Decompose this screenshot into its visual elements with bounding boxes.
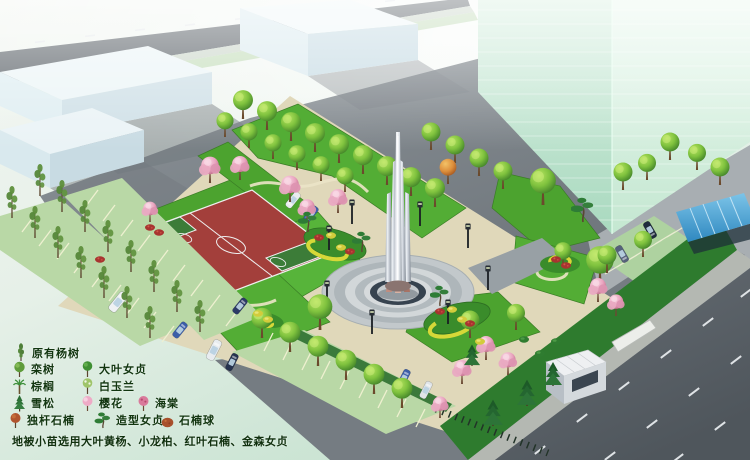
legend-item: 海棠 [136,394,179,412]
legend-item: 造型女贞 [94,411,164,429]
legend-item: 雪松 [12,394,55,412]
shaped-privet-icon [94,411,112,429]
legend-label: 造型女贞 [116,415,164,429]
legend-item: 原有杨树 [14,340,80,362]
single-stem-photinia-icon [8,411,23,429]
groundcover-note: 地被小苗选用大叶黄杨、小龙柏、红叶石楠、金森女贞 [12,433,288,449]
bigleaf-privet-tree-icon [80,360,95,378]
legend-label: 栾树 [31,364,55,378]
legend-label: 大叶女贞 [99,364,147,378]
legend-label: 白玉兰 [99,381,135,395]
legend-item: 石楠球 [160,411,215,429]
koelreuteria-tree-icon [12,360,27,378]
legend-item: 棕榈 [12,377,55,395]
legend-item: 大叶女贞 [80,360,147,378]
legend-item: 樱花 [80,394,123,412]
legend-item: 栾树 [12,360,55,378]
legend-label: 樱花 [99,398,123,412]
photinia-ball-icon [160,411,175,429]
white-magnolia-tree-icon [80,377,95,395]
palm-tree-icon [12,377,27,395]
cedar-tree-icon [12,394,27,412]
legend-label: 独杆石楠 [27,415,75,429]
legend-label: 棕榈 [31,381,55,395]
crabapple-tree-icon [136,394,151,412]
poplar-tree-icon [14,340,28,362]
legend-label: 海棠 [155,398,179,412]
haze-overlay [0,0,750,150]
cherry-blossom-tree-icon [80,394,95,412]
legend-item: 独杆石楠 [8,411,75,429]
plant-legend: 原有杨树 栾树 大叶女贞 棕榈 白玉兰 [0,340,310,460]
legend-label: 石楠球 [179,415,215,429]
legend-item: 白玉兰 [80,377,135,395]
legend-label: 雪松 [31,398,55,412]
landscape-rendering: 原有杨树 栾树 大叶女贞 棕榈 白玉兰 [0,0,750,460]
